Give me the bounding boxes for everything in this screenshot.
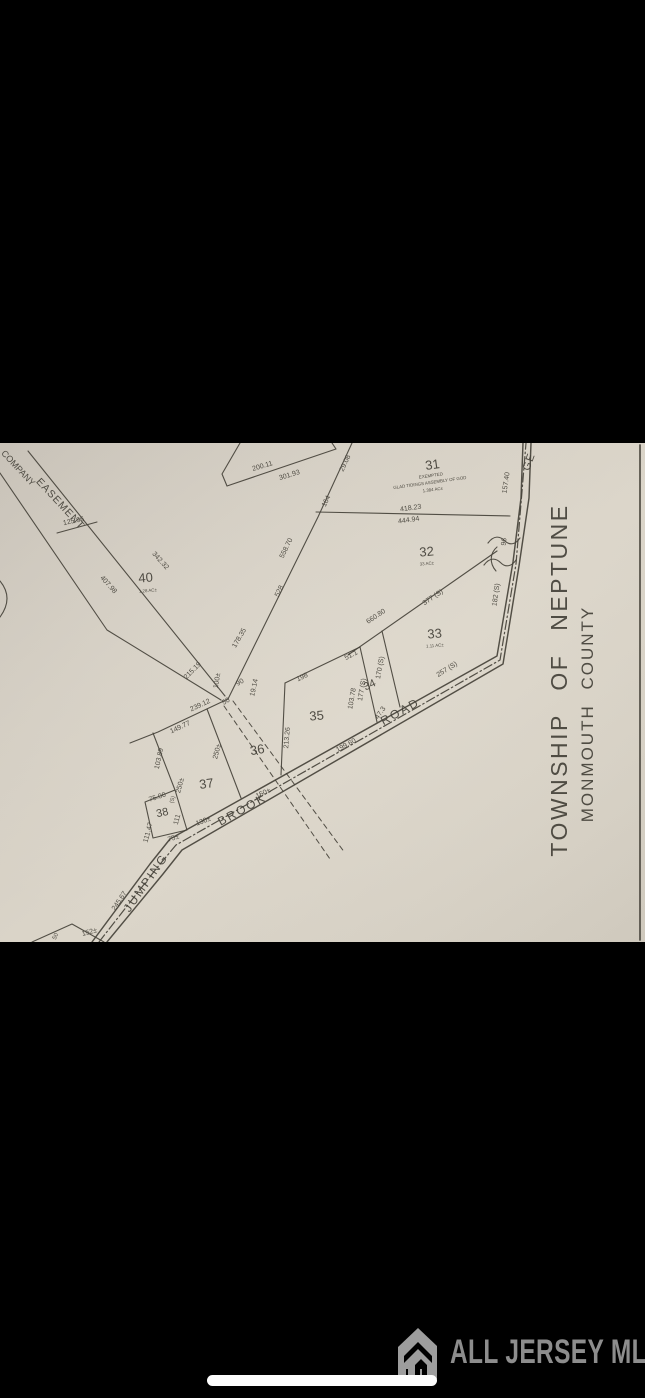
lot-33-number: 33 — [427, 625, 443, 641]
lot-36-number: 36 — [249, 741, 266, 758]
photo-viewer-screen: 31EXEMPTEDGLAD TIDINGS ASSEMBLY OF GOD1.… — [0, 0, 645, 1398]
lot-40-number: 40 — [138, 569, 154, 585]
building-icon — [391, 1325, 445, 1381]
plat-map-photo[interactable]: 31EXEMPTEDGLAD TIDINGS ASSEMBLY OF GOD1.… — [0, 443, 645, 942]
lot-38-number: 38 — [155, 806, 169, 820]
lot-32-number: 32 — [419, 543, 435, 559]
home-indicator[interactable] — [207, 1375, 437, 1386]
county-title: MONMOUTH COUNTY — [578, 606, 597, 822]
mls-watermark-text: ALL JERSEY MLS — [450, 1333, 645, 1372]
lot-37-number: 37 — [198, 775, 214, 792]
township-title: TOWNSHIP OF NEPTUNE — [546, 503, 572, 856]
dim-96: 96 — [501, 537, 509, 546]
lot-31-number: 31 — [424, 456, 440, 473]
lot-35-number: 35 — [309, 707, 325, 723]
